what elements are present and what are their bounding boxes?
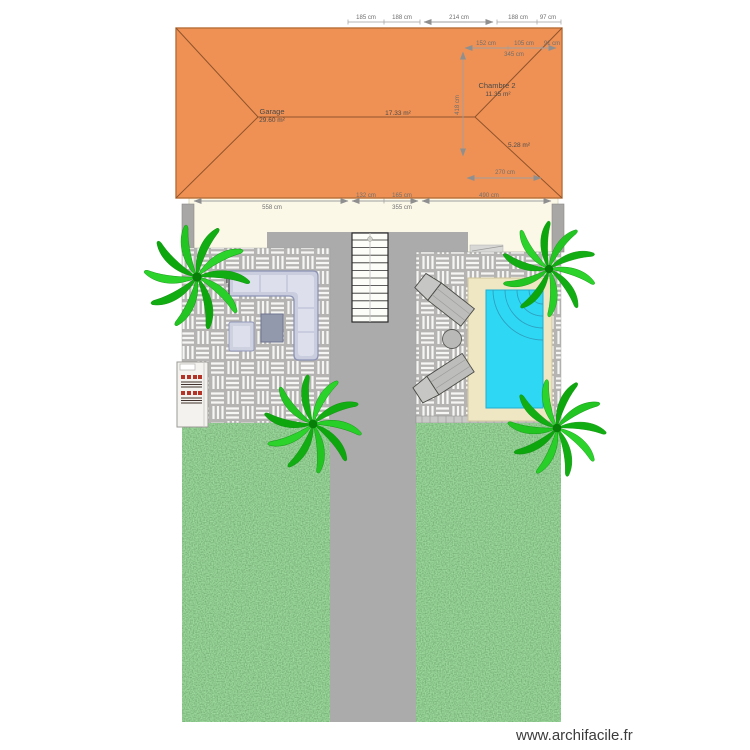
svg-text:97 cm: 97 cm: [540, 15, 556, 21]
stairs-start-marker: [368, 237, 373, 242]
svg-text:188 cm: 188 cm: [508, 15, 528, 21]
plan-export-page: Garage 29.60 m² 17.33 m² Chambre 2 11.35…: [0, 0, 750, 750]
svg-text:490 cm: 490 cm: [479, 193, 499, 199]
pool-water[interactable]: [486, 290, 543, 408]
svg-text:165 cm: 165 cm: [392, 193, 412, 199]
door-step[interactable]: [470, 245, 503, 252]
svg-text:188 cm: 188 cm: [392, 15, 412, 21]
svg-text:152 cm: 152 cm: [476, 41, 496, 47]
stairs[interactable]: [352, 233, 388, 322]
svg-text:132 cm: 132 cm: [356, 193, 376, 199]
swimming-pool[interactable]: [468, 278, 552, 421]
svg-text:355 cm: 355 cm: [392, 205, 412, 211]
round-side-table[interactable]: [443, 330, 462, 349]
bbq-handle: [180, 364, 195, 370]
svg-text:418 cm: 418 cm: [455, 95, 461, 115]
svg-text:185 cm: 185 cm: [356, 15, 376, 21]
area-label-chambre2: 11.35 m²: [485, 91, 511, 98]
svg-text:214 cm: 214 cm: [449, 15, 469, 21]
floor-plan-canvas: Garage 29.60 m² 17.33 m² Chambre 2 11.35…: [0, 0, 750, 750]
svg-text:558 cm: 558 cm: [262, 205, 282, 211]
area-label-living: 17.33 m²: [385, 110, 411, 117]
svg-text:91 cm: 91 cm: [544, 41, 560, 47]
room-label-chambre2: Chambre 2: [478, 81, 515, 90]
svg-text:105 cm: 105 cm: [514, 41, 534, 47]
svg-text:345 cm: 345 cm: [504, 52, 524, 58]
grass-left[interactable]: [182, 423, 330, 722]
svg-text:270 cm: 270 cm: [495, 170, 515, 176]
coffee-table[interactable]: [261, 314, 283, 342]
area-label-small-room: 5.28 m²: [508, 142, 531, 149]
area-label-garage: 29.60 m²: [259, 117, 285, 124]
ottoman[interactable]: [229, 322, 254, 351]
bbq-grill[interactable]: [177, 362, 208, 427]
room-label-garage: Garage: [259, 107, 284, 116]
watermark-text: www.archifacile.fr: [515, 727, 633, 744]
